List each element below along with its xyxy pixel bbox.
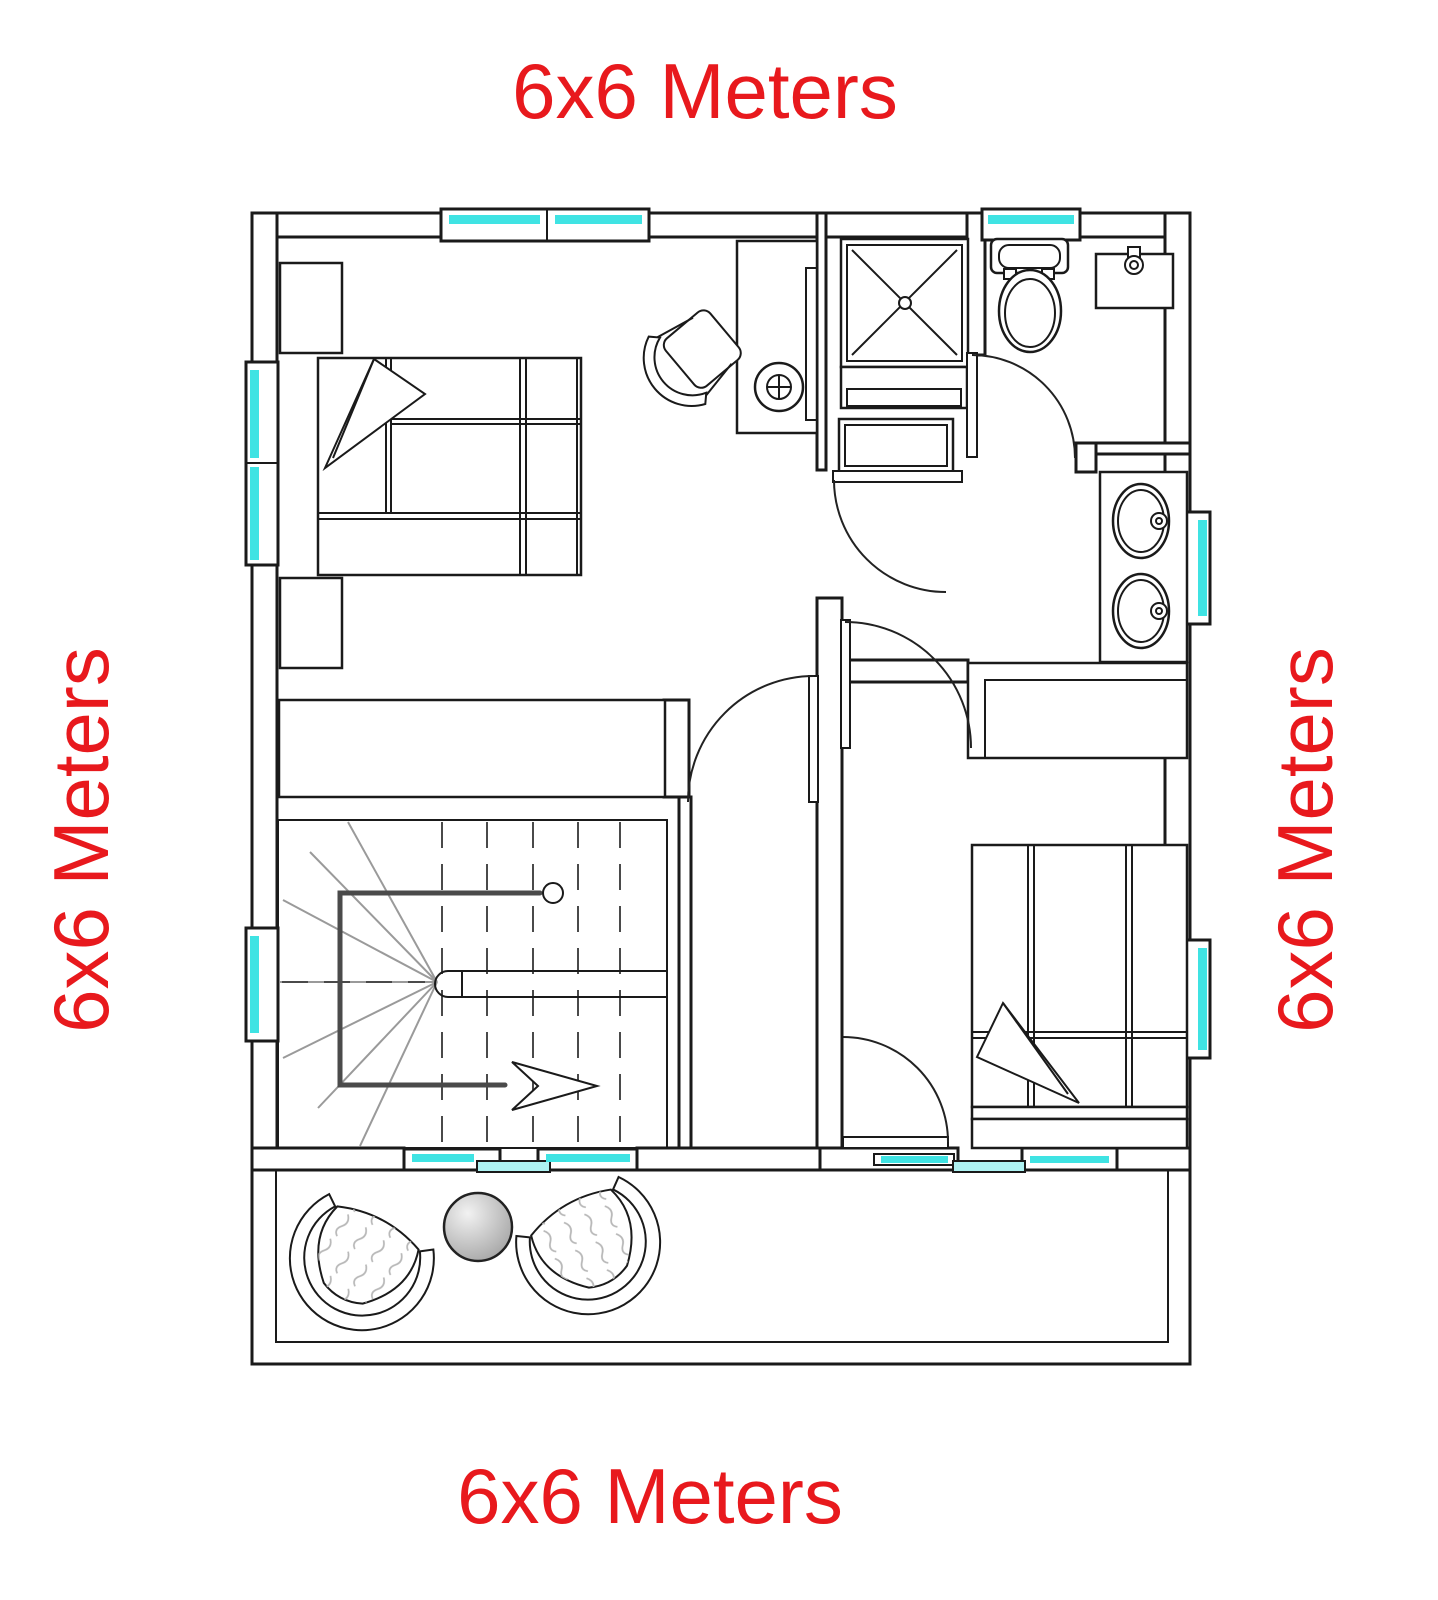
- desk-chair: [627, 297, 753, 423]
- direction-arrow: [512, 1062, 597, 1110]
- nightstand-top: [280, 263, 342, 353]
- door-stair-hall: [688, 676, 818, 802]
- dimension-label-bottom: 6x6 Meters: [457, 1452, 843, 1540]
- shower: [841, 239, 968, 367]
- window-top-bath: [982, 209, 1080, 240]
- vanity-double-sink: [1100, 472, 1187, 662]
- window-bottom-right-group: [820, 1148, 1117, 1172]
- stair-handrail: [340, 893, 540, 1085]
- window-bottom-left-group: [404, 1149, 637, 1172]
- door-shower-room: [833, 471, 962, 592]
- bathroom: [991, 239, 1173, 352]
- shower-step: [841, 367, 967, 408]
- floor-plan-page: 6x6 Meters 6x6 Meters 6x6 Meters 6x6 Met…: [0, 0, 1438, 1600]
- desk-area: [627, 241, 817, 433]
- bedroom-bottom-right: [968, 663, 1187, 1148]
- door-bathroom: [967, 353, 1075, 458]
- double-bed-bottom-right: [972, 845, 1187, 1148]
- floor-plan-svg: 6x6 Meters 6x6 Meters 6x6 Meters 6x6 Met…: [0, 0, 1438, 1600]
- stair-treads: [282, 822, 620, 1146]
- dimension-label-top: 6x6 Meters: [512, 47, 898, 135]
- round-table: [444, 1193, 512, 1261]
- desk-lamp-icon: [755, 363, 803, 411]
- door-balcony: [843, 1037, 948, 1148]
- double-bed-top-left: [318, 358, 581, 575]
- closet: [968, 663, 1187, 758]
- window-top-double: [441, 209, 649, 241]
- window-left-double: [246, 362, 278, 565]
- newel-post: [543, 883, 563, 903]
- bath-mat: [839, 419, 953, 472]
- stair-winder-lines: [280, 822, 437, 1146]
- dimension-label-left: 6x6 Meters: [37, 647, 125, 1033]
- wardrobe: [279, 700, 665, 797]
- door-bedroom-right: [841, 620, 971, 748]
- toilet: [991, 239, 1068, 352]
- staircase: [278, 820, 667, 1148]
- nightstand-bottom: [280, 578, 342, 668]
- shower-room: [839, 239, 968, 472]
- stair-center-rail: [435, 971, 667, 997]
- bedroom-top-left: [279, 263, 665, 797]
- dimension-label-right: 6x6 Meters: [1261, 647, 1349, 1033]
- window-left-stairs: [246, 928, 278, 1041]
- bathroom-sink: [1096, 247, 1173, 308]
